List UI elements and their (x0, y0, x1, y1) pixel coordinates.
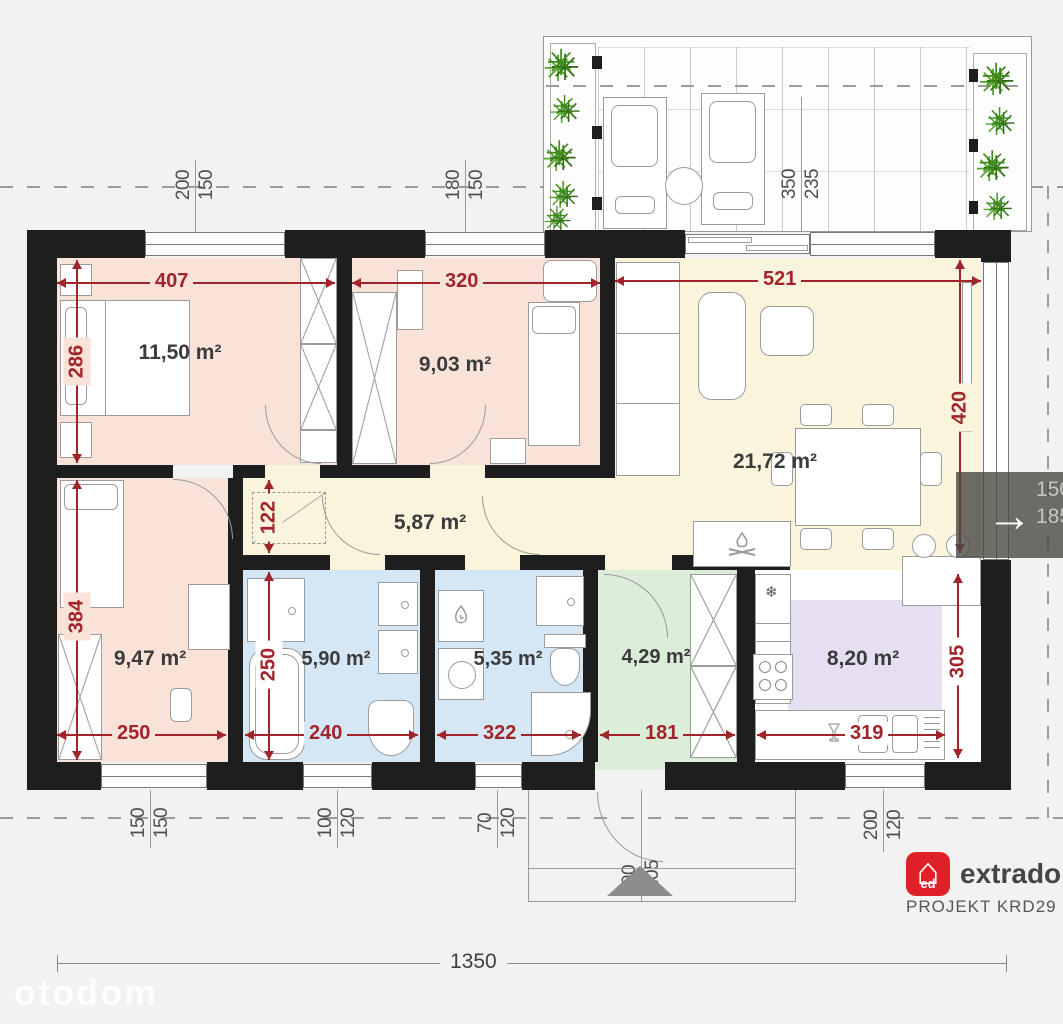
wine-glass-icon (826, 723, 842, 743)
dim-right-window-partial: 150 (1036, 478, 1063, 502)
sink (536, 576, 584, 626)
wall-right-bottom (981, 560, 1011, 790)
dim-utility-width: 322 (478, 722, 521, 745)
slider-panel (688, 237, 752, 243)
terrace-stub (592, 56, 602, 69)
burner (759, 679, 771, 691)
desk (397, 270, 423, 330)
coffee-table (698, 292, 746, 400)
wall-interior (385, 555, 465, 570)
dim-bedroom3-width: 250 (112, 722, 155, 745)
water-heater (438, 590, 484, 642)
area-label-entry: 4,29 m² (594, 644, 718, 670)
dim-kitchen-width: 319 (845, 722, 888, 745)
total-dim-tick (57, 955, 58, 972)
snowflake-icon: ❄ (765, 583, 778, 601)
otodom-watermark: otodom (14, 972, 158, 1014)
terrace-stub (969, 139, 978, 152)
dim-value: 120 (885, 810, 905, 840)
chair (862, 404, 894, 426)
sun-lounger (701, 93, 765, 225)
floor-plan-image: ✳ ✳ ✳ ✳ ✳ ✳ ✳ ✳ ✳ 350 235 (0, 0, 1063, 1024)
plant-icon: ✳ (546, 203, 568, 229)
dim-top-window-2: 180 150 (436, 155, 494, 215)
terrace-table (665, 167, 703, 205)
wall-left (27, 230, 57, 790)
side-table (490, 438, 526, 464)
burner (775, 661, 787, 673)
dim-bottom-window-3: 70 120 (468, 793, 526, 853)
plant-icon: ✳ (546, 45, 576, 81)
window (425, 232, 545, 256)
sofa (616, 262, 680, 476)
terrace-stub (592, 126, 602, 139)
wall-bottom (372, 762, 475, 790)
wall-bottom (207, 762, 303, 790)
cushion-line (617, 333, 679, 334)
dim-value: 100 (316, 808, 336, 838)
cushion-line (617, 403, 679, 404)
entrance-marker (607, 866, 673, 896)
chair (800, 528, 832, 550)
entry-door-sill (595, 762, 665, 770)
dim-bottom-window-2: 100 120 (308, 793, 366, 853)
wall-top (27, 230, 145, 258)
lounger-back (709, 101, 756, 163)
area-label-hallway: 5,87 m² (370, 510, 490, 536)
plant-icon: ✳ (987, 105, 1012, 135)
sun-lounger (603, 97, 667, 229)
window (145, 232, 285, 256)
dim-value: 200 (862, 810, 882, 840)
dim-bedroom2-width: 320 (440, 270, 483, 293)
single-bed (528, 302, 580, 446)
wall-bottom (27, 762, 101, 790)
wall-top (545, 230, 685, 258)
dim-value: 150 (467, 170, 487, 200)
dim-value: 70 (476, 813, 496, 833)
plant-icon: ✳ (985, 191, 1009, 220)
wall-bottom (522, 762, 595, 790)
area-label-kitchen: 8,20 m² (800, 646, 926, 672)
total-dim-tick (1006, 955, 1007, 972)
lounger-foot (615, 196, 655, 214)
campfire-icon (725, 531, 759, 557)
fireplace (693, 521, 791, 567)
armchair (760, 306, 814, 356)
chair (862, 528, 894, 550)
plant-icon: ✳ (545, 137, 574, 171)
wall-top (285, 230, 425, 258)
window (475, 764, 522, 788)
wardrobe (352, 292, 397, 464)
wall-interior (520, 555, 605, 570)
dim-bedroom1-depth: 286 (64, 338, 91, 386)
dim-entry-width: 181 (640, 722, 683, 745)
burner (759, 661, 771, 673)
dim-kitchen-depth: 305 (945, 638, 972, 686)
window (101, 764, 207, 788)
area-label-bedroom3: 9,47 m² (85, 646, 215, 672)
dim-value: 120 (339, 808, 359, 838)
kitchen-window (845, 764, 925, 788)
window (303, 764, 372, 788)
terrace-stub (592, 197, 602, 210)
wall-interior (233, 465, 265, 478)
counter-line (756, 641, 790, 642)
wall-interior (600, 258, 615, 465)
dim-living-depth: 420 (947, 384, 974, 432)
lounger-back (611, 105, 658, 167)
armchair (543, 260, 597, 302)
dim-bedroom3-depth: 384 (64, 593, 91, 641)
desk (188, 584, 230, 650)
area-label-bedroom2: 9,03 m² (390, 352, 520, 378)
extradom-logo-text: extradom (960, 858, 1063, 890)
terrace-stub (969, 201, 978, 214)
dim-bathroom-width: 240 (304, 722, 347, 745)
shower (247, 578, 305, 642)
dim-value: 350 (780, 169, 800, 199)
wall-bottom (925, 762, 1011, 790)
dim-bedroom1-width: 407 (150, 270, 193, 293)
wardrobe (300, 258, 337, 344)
dim-living-width: 521 (758, 268, 801, 291)
window (810, 232, 935, 256)
blanket-line (105, 301, 106, 415)
area-label-bathroom: 5,90 m² (274, 646, 398, 672)
terrace-stub (969, 69, 978, 82)
dim-value: 235 (803, 169, 823, 199)
plant-icon: ✳ (552, 93, 577, 123)
hob (753, 654, 793, 700)
area-label-bedroom1: 11,50 m² (110, 340, 250, 366)
dim-bottom-window-1: 150 150 (121, 793, 179, 853)
toilet (368, 700, 414, 756)
wall-interior (243, 555, 330, 570)
wall-bottom (665, 762, 845, 790)
lounger-foot (713, 192, 753, 210)
logo-badge-text: ed (920, 876, 935, 891)
dim-value: 180 (444, 170, 464, 200)
dim-value: 200 (174, 170, 194, 200)
slider-panel (746, 245, 808, 251)
wall-interior (420, 570, 435, 762)
chair (800, 404, 832, 426)
chair (920, 452, 942, 486)
wall-interior (485, 465, 615, 478)
plant-icon: ✳ (978, 147, 1007, 181)
dim-leader (801, 97, 802, 231)
dim-kitchen-window: 200 120 (854, 795, 912, 855)
burner (775, 679, 787, 691)
dining-table (795, 428, 921, 526)
project-code: PROJEKT KRD29 (906, 897, 1057, 917)
flame-icon (452, 605, 470, 627)
counter-line (756, 623, 790, 624)
dim-value: 150 (152, 808, 172, 838)
terrace-roof-dash (546, 85, 1030, 87)
terrace: ✳ ✳ ✳ ✳ ✳ ✳ ✳ ✳ ✳ 350 235 (543, 36, 1032, 232)
total-dim-line (57, 963, 1007, 964)
terrace-slider-door (685, 234, 810, 254)
bar-stool (912, 534, 936, 558)
dim-value: 150 (197, 170, 217, 200)
dim-value: 120 (499, 808, 519, 838)
bar-counter (902, 556, 981, 606)
total-width-label: 1350 (440, 950, 507, 974)
extradom-logo-icon: ⌂ ed (906, 852, 950, 896)
dim-right-window-partial: 185 (1036, 505, 1063, 529)
wardrobe (690, 666, 737, 758)
wall-interior (320, 465, 430, 478)
plant-icon: ✳ (981, 59, 1011, 95)
arrow-right-icon: → (987, 492, 1033, 538)
dim-top-window-1: 200 150 (166, 155, 224, 215)
area-label-living: 21,72 m² (700, 448, 850, 476)
wall-interior (337, 258, 352, 465)
pillow (532, 306, 576, 334)
dim-value: 150 (129, 808, 149, 838)
dim-line (57, 282, 335, 284)
area-label-utility: 5,35 m² (446, 646, 570, 672)
wall-interior (57, 465, 173, 478)
chair (170, 688, 192, 722)
dim-hall-niche: 122 (256, 494, 283, 542)
wall-top (935, 230, 1011, 258)
sink (378, 582, 418, 626)
single-bed (60, 480, 124, 608)
